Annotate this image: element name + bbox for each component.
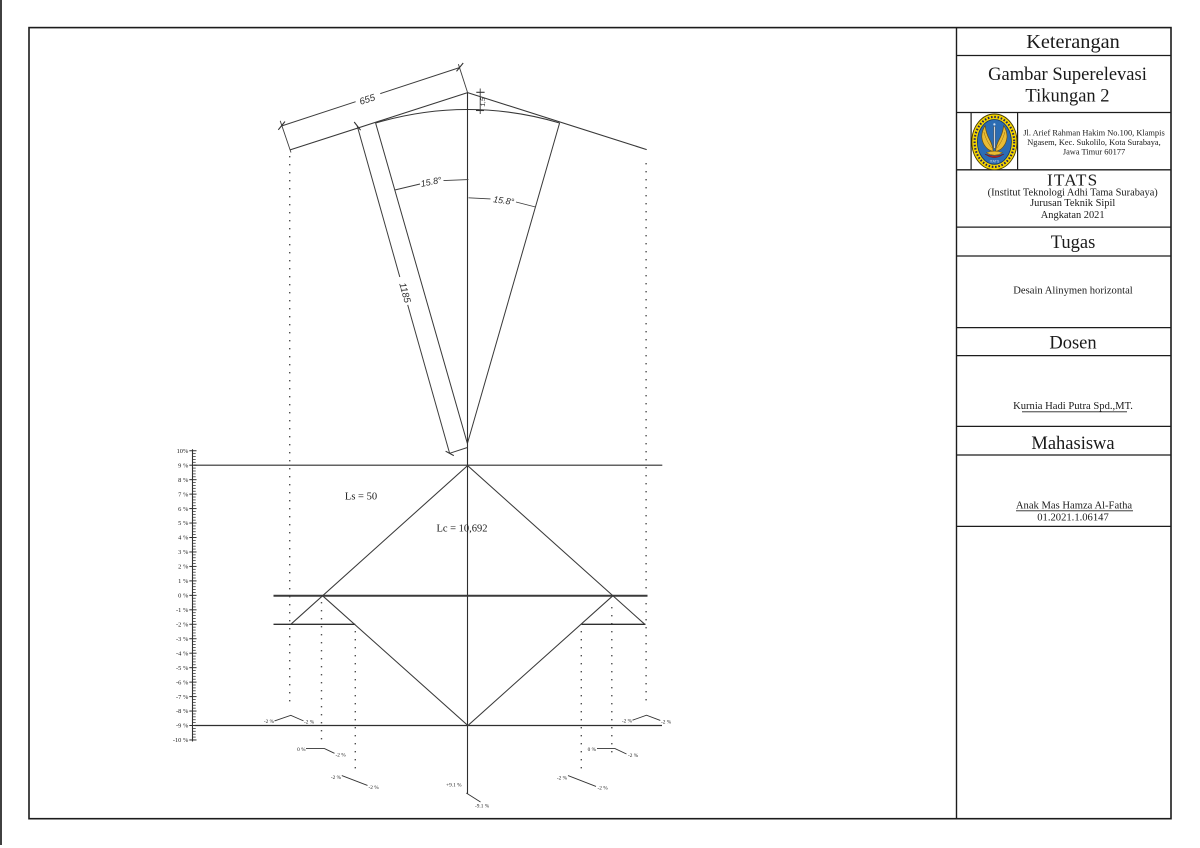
svg-text:-3 %: -3 % <box>176 636 189 643</box>
svg-text:Dosen: Dosen <box>1049 333 1096 353</box>
svg-text:10%: 10% <box>177 448 189 455</box>
svg-text:-7 %: -7 % <box>176 694 189 701</box>
svg-text:9 %: 9 % <box>178 462 189 469</box>
svg-text:-9.1 %: -9.1 % <box>475 803 490 809</box>
svg-text:6 %: 6 % <box>178 506 189 513</box>
svg-text:-8 %: -8 % <box>176 708 189 715</box>
svg-text:Mahasiswa: Mahasiswa <box>1031 434 1114 454</box>
svg-text:Lc = 10,692: Lc = 10,692 <box>436 524 487 535</box>
svg-text:1 %: 1 % <box>178 578 189 585</box>
svg-text:ITATS: ITATS <box>990 160 1000 164</box>
svg-text:-2 %: -2 % <box>622 719 633 725</box>
svg-text:0 %: 0 % <box>297 747 306 753</box>
svg-text:-5 %: -5 % <box>176 665 189 672</box>
svg-text:-2 %: -2 % <box>369 785 380 791</box>
svg-text:-2 %: -2 % <box>264 719 275 725</box>
svg-text:1185: 1185 <box>396 282 412 305</box>
svg-text:-10 %: -10 % <box>173 737 189 744</box>
svg-text:0 %: 0 % <box>588 747 597 753</box>
svg-text:-2 %: -2 % <box>331 775 342 781</box>
svg-text:Ls = 50: Ls = 50 <box>345 492 377 503</box>
svg-text:7 %: 7 % <box>178 491 189 498</box>
svg-text:-4 %: -4 % <box>176 650 189 657</box>
svg-text:Tugas: Tugas <box>1051 233 1096 253</box>
svg-text:2 %: 2 % <box>178 564 189 571</box>
svg-text:1,5: 1,5 <box>480 97 487 106</box>
svg-text:Keterangan: Keterangan <box>1026 31 1119 53</box>
svg-text:-2 %: -2 % <box>598 786 609 792</box>
svg-text:(Institut Teknologi Adhi Tama: (Institut Teknologi Adhi Tama Surabaya) <box>988 188 1158 199</box>
svg-text:Angkatan 2021: Angkatan 2021 <box>1041 210 1105 221</box>
svg-text:Gambar Superelevasi: Gambar Superelevasi <box>988 65 1147 85</box>
svg-text:8 %: 8 % <box>178 477 189 484</box>
svg-text:-6 %: -6 % <box>176 679 189 686</box>
svg-text:Jl. Arief Rahman Hakim No.100,: Jl. Arief Rahman Hakim No.100, Klampis <box>1023 128 1164 137</box>
svg-text:-2 %: -2 % <box>628 753 639 759</box>
svg-text:3 %: 3 % <box>178 549 189 556</box>
svg-text:-2 %: -2 % <box>661 720 672 726</box>
svg-text:4 %: 4 % <box>178 535 189 542</box>
svg-text:Jurusan Teknik Sipil: Jurusan Teknik Sipil <box>1030 198 1115 209</box>
svg-text:-2 %: -2 % <box>336 752 347 758</box>
svg-text:+9.1 %: +9.1 % <box>446 782 462 788</box>
svg-text:-2 %: -2 % <box>557 776 568 782</box>
svg-text:Jawa Timur 60177: Jawa Timur 60177 <box>1063 148 1125 157</box>
svg-text:0 %: 0 % <box>178 593 189 600</box>
svg-text:Anak Mas Hamza Al-Fatha: Anak Mas Hamza Al-Fatha <box>1016 501 1133 512</box>
svg-text:-1 %: -1 % <box>176 607 189 614</box>
svg-text:-9 %: -9 % <box>176 723 189 730</box>
svg-text:655: 655 <box>358 92 377 108</box>
svg-text:15.8°: 15.8° <box>420 175 443 189</box>
svg-text:-2 %: -2 % <box>304 719 315 725</box>
svg-text:15.8°: 15.8° <box>493 194 516 207</box>
svg-text:5 %: 5 % <box>178 520 189 527</box>
svg-text:01.2021.1.06147: 01.2021.1.06147 <box>1037 513 1109 524</box>
svg-text:Kurnia Hadi Putra Spd.,MT.: Kurnia Hadi Putra Spd.,MT. <box>1013 401 1133 412</box>
svg-text:Desain Alinymen horizontal: Desain Alinymen horizontal <box>1013 285 1133 296</box>
svg-text:Tikungan 2: Tikungan 2 <box>1025 86 1109 106</box>
svg-text:Ngasem, Kec. Sukolilo, Kota Su: Ngasem, Kec. Sukolilo, Kota Surabaya, <box>1027 138 1161 147</box>
svg-text:-2 %: -2 % <box>176 621 189 628</box>
